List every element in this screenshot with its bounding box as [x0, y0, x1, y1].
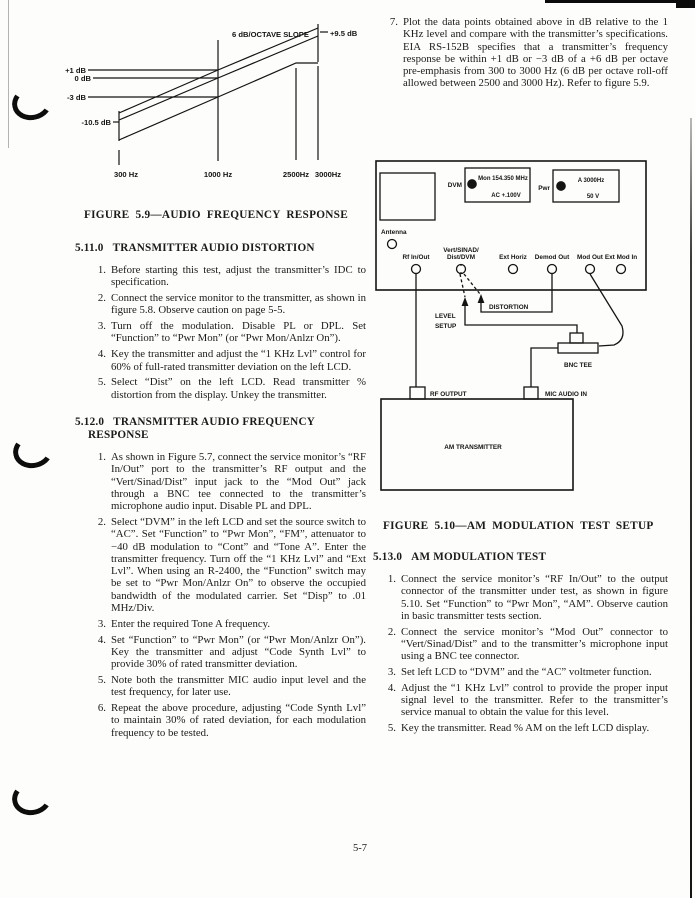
list-item: 3. Set left LCD to “DVM” and the “AC” vo… [385, 666, 668, 678]
list-item-number: 5. [385, 722, 396, 734]
list-item-text: Enter the required Tone A frequency. [111, 618, 366, 630]
mic-cable [531, 348, 558, 387]
level-setup-label-line1: LEVEL [435, 313, 456, 320]
bnc-tee-label: BNC TEE [564, 362, 593, 369]
demod-out-label: Demod Out [535, 254, 570, 261]
x-label-3000hz: 3000Hz [315, 170, 341, 179]
list-item: 6. Repeat the above procedure, adjusting… [95, 702, 366, 739]
dvm-display-line1: Mon 154.350 MHz [478, 176, 528, 182]
distortion-label: DISTORTION [489, 304, 529, 311]
list-item: 1. Connect the service monitor’s “RF In/… [385, 573, 668, 622]
dvm-label: DVM [448, 182, 462, 189]
list-item-number: 4. [95, 634, 106, 671]
list-item-text: Connect the service monitor’s “RF In/Out… [401, 573, 668, 622]
scan-edge-top-line [545, 0, 695, 3]
list-item-text: Turn off the modulation. Disable PL or D… [111, 320, 366, 345]
list-item: 2. Connect the service monitor to the tr… [95, 292, 366, 317]
left-column: 5.11.0TRANSMITTER AUDIO DISTORTION 1. Be… [75, 242, 366, 743]
list-item-number: 3. [385, 666, 396, 678]
list-item-text: Set “Function” to “Pwr Mon” (or “Pwr Mon… [111, 634, 366, 671]
section-number: 5.13.0 [373, 551, 402, 563]
chart-lines [88, 24, 328, 165]
list-item-number: 3. [95, 618, 106, 630]
section-heading: 5.13.0AM MODULATION TEST [373, 551, 668, 564]
right-column: 5.13.0AM MODULATION TEST 1. Connect the … [373, 551, 668, 738]
bnc-tee-body [558, 343, 598, 353]
binder-ring-mark [9, 82, 55, 124]
x-label-300hz: 300 Hz [114, 170, 138, 179]
list-item-number: 1. [95, 264, 106, 289]
ext-horiz-jack [509, 265, 518, 274]
section-number: 5.12.0 [75, 416, 104, 428]
list-item: 5. Note both the transmitter MIC audio i… [95, 674, 366, 699]
page-number: 5-7 [338, 843, 382, 854]
ext-mod-in-label: Ext Mod In [605, 254, 637, 261]
section-title: TRANSMITTER AUDIO DISTORTION [113, 242, 315, 254]
binder-ring-mark [9, 777, 55, 819]
list-item-text: As shown in Figure 5.7, connect the serv… [111, 451, 366, 512]
section-items: 1. As shown in Figure 5.7, connect the s… [95, 451, 366, 739]
binder-ring-mark [10, 430, 56, 472]
list-item: 4. Adjust the “1 KHz Lvl” control to pro… [385, 682, 668, 719]
distortion-arrow-icon [478, 294, 485, 303]
rf-output-connector [410, 387, 425, 399]
list-item-number: 2. [385, 626, 396, 663]
list-item-number: 6. [95, 702, 106, 739]
section-5-12-0: 5.12.0TRANSMITTER AUDIO FREQUENCY RESPON… [75, 416, 366, 739]
mod-out-jack [586, 265, 595, 274]
manual-page: 6 dB/OCTAVE SLOPE +9.5 dB +1 dB 0 dB -3 … [0, 0, 695, 898]
distortion-dashed-lead [464, 274, 480, 294]
level-setup-label-line2: SETUP [435, 323, 457, 330]
list-item-text: Repeat the above procedure, adjusting “C… [111, 702, 366, 739]
dvm-indicator-dot [468, 180, 476, 188]
section-items: 7. Plot the data points obtained above i… [387, 16, 668, 90]
list-item-text: Connect the service monitor’s “Mod Out” … [401, 626, 668, 663]
ext-horiz-label: Ext Horiz [499, 254, 527, 261]
list-item-text: Connect the service monitor to the trans… [111, 292, 366, 317]
list-item-text: Set left LCD to “DVM” and the “AC” voltm… [401, 666, 668, 678]
list-item: 2. Select “DVM” in the left LCD and set … [95, 516, 366, 614]
rf-output-label: RF OUTPUT [430, 391, 467, 398]
list-item-text: Select “DVM” in the left LCD and set the… [111, 516, 366, 614]
list-item-number: 3. [95, 320, 106, 345]
list-item-text: Key the transmitter and adjust the “1 KH… [111, 348, 366, 373]
section-5-11-0: 5.11.0TRANSMITTER AUDIO DISTORTION 1. Be… [75, 242, 366, 401]
diagram-shapes [376, 161, 646, 490]
list-item-number: 4. [385, 682, 396, 719]
section-heading: 5.11.0TRANSMITTER AUDIO DISTORTION [75, 242, 366, 255]
antenna-label: Antenna [381, 229, 407, 236]
antenna-jack [388, 240, 397, 249]
list-item-text: Note both the transmitter MIC audio inpu… [111, 674, 366, 699]
section-number: 5.11.0 [75, 242, 104, 254]
list-item: 1. As shown in Figure 5.7, connect the s… [95, 451, 366, 512]
list-item-number: 5. [95, 674, 106, 699]
scan-edge-right-line [690, 118, 692, 898]
list-item: 4. Set “Function” to “Pwr Mon” (or “Pwr … [95, 634, 366, 671]
list-item: 7. Plot the data points obtained above i… [387, 16, 668, 90]
scan-edge-left-line [8, 0, 9, 148]
list-item-number: 1. [95, 451, 106, 512]
list-item: 5. Select “Dist” on the left LCD. Read t… [95, 376, 366, 401]
list-item-text: Plot the data points obtained above in d… [403, 16, 668, 90]
pwr-label: Pwr [538, 185, 550, 192]
mic-audio-in-label: MIC AUDIO IN [545, 391, 587, 398]
y-label-zero: 0 dB [75, 74, 92, 83]
section-heading: 5.12.0TRANSMITTER AUDIO FREQUENCY RESPON… [75, 416, 366, 442]
rf-in-out-label: Rf In/Out [403, 254, 431, 261]
list-item-number: 4. [95, 348, 106, 373]
vert-sinad-label-line2: Dist/DVM [447, 254, 475, 261]
list-item: 3. Enter the required Tone A frequency. [95, 618, 366, 630]
list-item: 5. Key the transmitter. Read % AM on the… [385, 722, 668, 734]
crt-screen [380, 173, 435, 220]
pwr-indicator-dot [557, 182, 565, 190]
bnc-tee-top-port [570, 333, 583, 343]
list-item-text: Select “Dist” on the left LCD. Read tran… [111, 376, 366, 401]
x-label-1000hz: 1000 Hz [204, 170, 232, 179]
section-5-13-0: 5.13.0AM MODULATION TEST 1. Connect the … [373, 551, 668, 735]
list-item: 3. Turn off the modulation. Disable PL o… [95, 320, 366, 345]
mod-out-label: Mod Out [577, 254, 604, 261]
list-item-number: 7. [387, 16, 398, 90]
list-item-number: 5. [95, 376, 106, 401]
figure-5-10-caption: FIGURE 5.10—AM MODULATION TEST SETUP [383, 520, 654, 532]
list-item-text: Key the transmitter. Read % AM on the le… [401, 722, 668, 734]
figure-5-10-diagram: DVM Mon 154.350 MHz AC +.100V Pwr A 3000… [373, 156, 665, 512]
slope-annotation: 6 dB/OCTAVE SLOPE [232, 30, 309, 39]
level-setup-dashed-lead [460, 274, 465, 297]
list-item: 4. Key the transmitter and adjust the “1… [95, 348, 366, 373]
dvm-display-line2: AC +.100V [491, 193, 521, 199]
section-title: TRANSMITTER AUDIO FREQUENCY RESPONSE [88, 416, 315, 441]
list-item-number: 2. [95, 516, 106, 614]
y-label-plus95: +9.5 dB [330, 29, 358, 38]
list-item-text: Before starting this test, adjust the tr… [111, 264, 366, 289]
level-setup-arrow-icon [462, 297, 469, 306]
section-items: 1. Before starting this test, adjust the… [95, 264, 366, 401]
x-label-2500hz: 2500Hz [283, 170, 309, 179]
list-item-text: Adjust the “1 KHz Lvl” control to provid… [401, 682, 668, 719]
list-item: 2. Connect the service monitor’s “Mod Ou… [385, 626, 668, 663]
figure-5-9-caption: FIGURE 5.9—AUDIO FREQUENCY RESPONSE [70, 209, 362, 221]
demod-out-jack [548, 265, 557, 274]
y-label-minus3: -3 dB [67, 93, 87, 102]
am-transmitter-label: AM TRANSMITTER [444, 444, 502, 451]
scan-edge-top-corner [676, 0, 695, 8]
mod-out-cable [590, 274, 623, 346]
section-title: AM MODULATION TEST [411, 551, 546, 563]
vert-sinad-label-line1: Vert/SINAD/ [443, 247, 479, 254]
mic-audio-in-connector [524, 387, 538, 399]
list-item: 1. Before starting this test, adjust the… [95, 264, 366, 289]
list-item-number: 1. [385, 573, 396, 622]
right-column-continuation: 7. Plot the data points obtained above i… [378, 16, 668, 93]
pwr-display-line2: 50 V [587, 194, 599, 200]
section-items: 1. Connect the service monitor’s “RF In/… [385, 573, 668, 735]
list-item-number: 2. [95, 292, 106, 317]
figure-5-9-chart: 6 dB/OCTAVE SLOPE +9.5 dB +1 dB 0 dB -3 … [62, 10, 362, 200]
pwr-display-line1: A 3000Hz [578, 178, 604, 184]
y-label-minus105: -10.5 dB [81, 118, 111, 127]
rf-in-out-jack [412, 265, 421, 274]
ext-mod-in-jack [617, 265, 626, 274]
